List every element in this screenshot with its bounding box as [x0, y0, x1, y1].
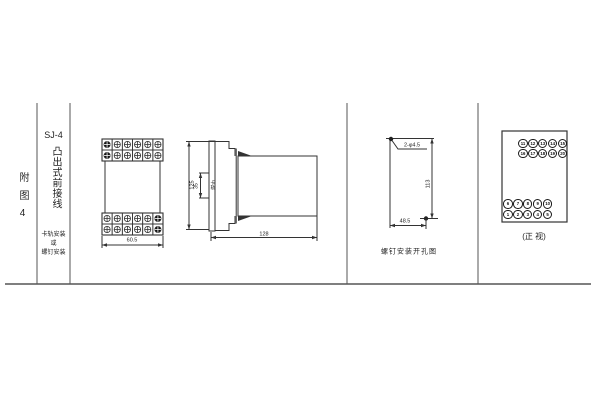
- top-latch-mark: [238, 151, 252, 157]
- figure-page: 附图4 SJ-4 凸出式前接线 卡轨安装 或 螺钉安装 60.5 125 35 …: [0, 0, 600, 400]
- front-width-dim: 60.5: [127, 238, 138, 244]
- bottom-latch-mark: [238, 216, 252, 222]
- side-view-drawing: [186, 141, 317, 241]
- mount-line-3: 螺钉安装: [36, 249, 71, 258]
- side-depth-dim: 128: [259, 232, 268, 238]
- front-view-drawing: [102, 139, 163, 248]
- terminal-number: 1: [503, 210, 512, 219]
- terminal-number: 12: [528, 139, 537, 148]
- drill-horizontal-dim: 48.5: [400, 219, 411, 225]
- drill-holes-label: 2-φ4.5: [404, 143, 420, 149]
- terminal-number: 17: [528, 149, 537, 158]
- terminal-number: 2: [513, 210, 522, 219]
- mount-line-2: 或: [36, 240, 71, 249]
- terminal-number: 10: [543, 199, 552, 208]
- table-grid-lines: [5, 103, 591, 284]
- terminal-caption: (正 视): [522, 233, 546, 241]
- terminal-screws: [102, 139, 163, 235]
- mounting-note: 卡轨安装 或 螺钉安装: [36, 231, 71, 258]
- model-label: SJ-4: [37, 130, 70, 140]
- drill-vertical-dim: 113: [426, 180, 432, 189]
- terminal-number: 6: [503, 199, 512, 208]
- drill-caption: 螺钉安装开孔图: [381, 249, 437, 256]
- terminal-number: 7: [513, 199, 522, 208]
- figure-label: 附图4: [15, 172, 30, 227]
- terminal-number: 9: [533, 199, 542, 208]
- terminal-number: 11: [518, 139, 527, 148]
- mount-line-1: 卡轨安装: [36, 231, 71, 240]
- rail-dim: 35: [194, 183, 199, 189]
- wiring-type-label: 凸出式前接线: [48, 146, 63, 209]
- rail-label: 卡轨: [210, 180, 215, 190]
